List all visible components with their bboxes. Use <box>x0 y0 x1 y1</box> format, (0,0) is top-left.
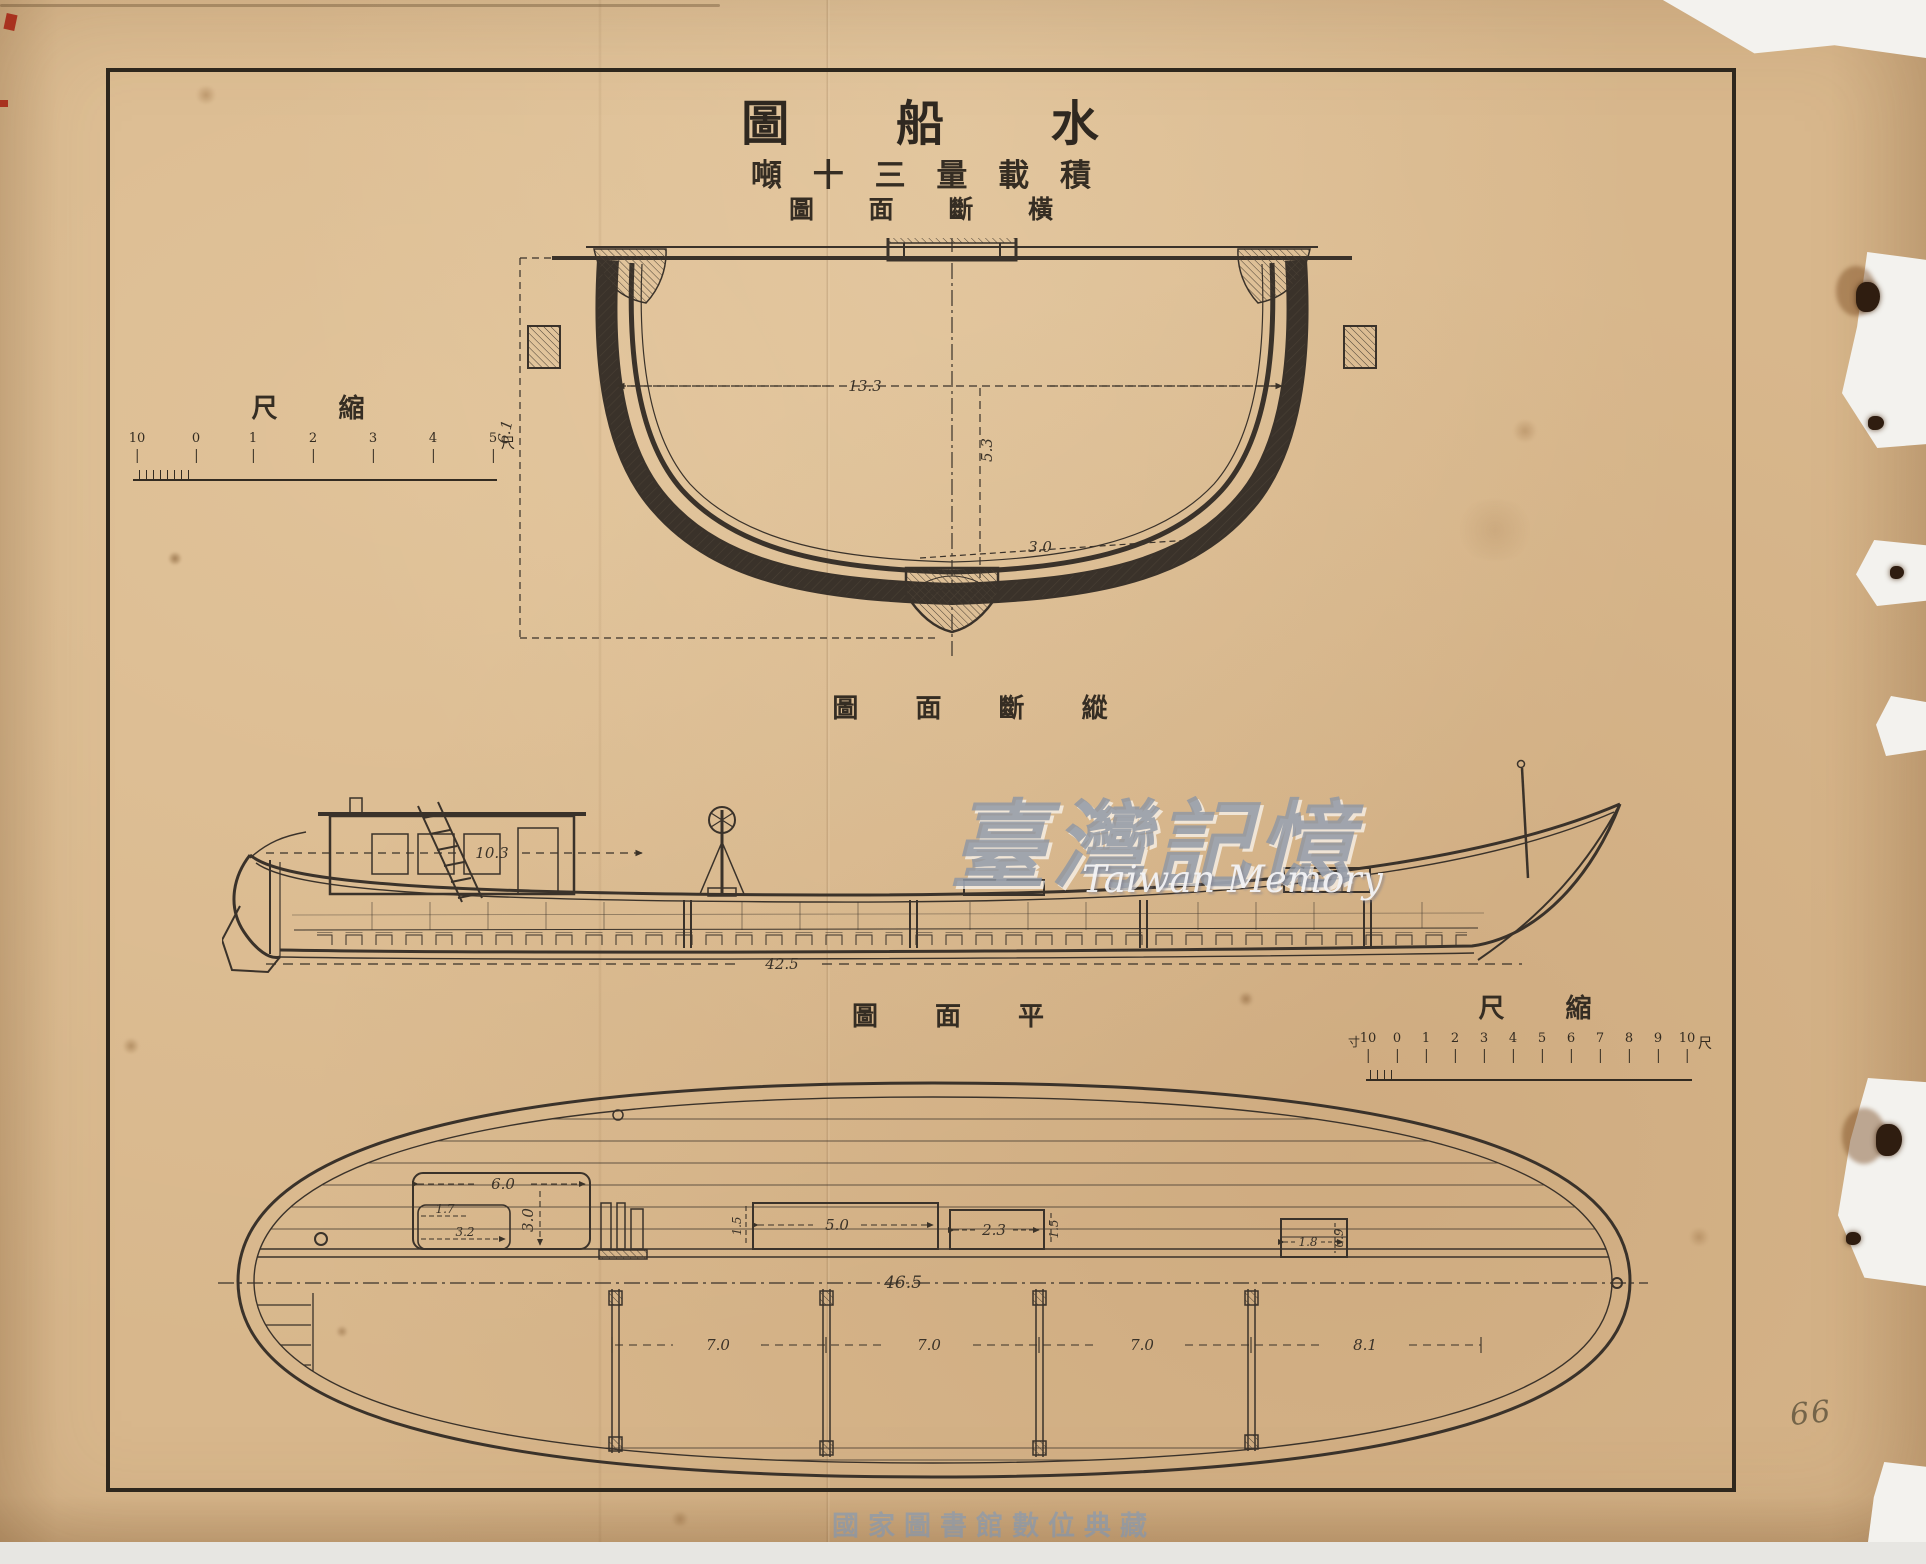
ruler-unit-sun: 寸 <box>1348 1033 1360 1050</box>
dim-plan-hatch-depth: 3.0 <box>519 1208 537 1232</box>
red-mark <box>0 100 8 107</box>
ruler-tick: 8 <box>1625 1031 1633 1046</box>
dim-side-length: 42.5 <box>764 955 798 973</box>
dim-cross-depth: 5.3 <box>978 438 996 462</box>
handwritten-page-number: 66 <box>1788 1394 1834 1433</box>
side-interior <box>292 900 1484 948</box>
stain <box>670 1512 690 1526</box>
ruler-tick: 4 <box>1509 1031 1517 1046</box>
ruler-tick: 4 <box>429 431 437 446</box>
stain <box>1450 500 1540 560</box>
dim-plan-aft-width: 2.3 <box>981 1221 1006 1239</box>
scanner-background-strip <box>0 1542 1926 1564</box>
plan-deck-edge <box>233 1249 1633 1257</box>
page-subtitle-capacity: 噸 十 三 量 載 積 <box>106 150 1736 195</box>
longitudinal-section-drawing: 10.3 42.5 <box>222 710 1657 1010</box>
dim-plan-mid-width: 5.0 <box>825 1216 849 1234</box>
cross-keel <box>906 568 998 632</box>
stain <box>195 86 217 104</box>
cross-section-drawing: 13.3 5.3 3.0 6.1 <box>490 238 1410 658</box>
dim-cross-height: 6.1 <box>494 418 517 445</box>
plan-bulkheads <box>609 1289 1258 1457</box>
dim-plan-bay2: 7.0 <box>917 1336 941 1354</box>
stain <box>336 1326 348 1337</box>
side-hull-profile <box>222 804 1620 972</box>
library-watermark: 國家圖書館數位典藏 <box>832 1504 1156 1543</box>
stain <box>1512 420 1538 442</box>
ruler-tick: 0 <box>192 431 200 446</box>
ruler-tick: 10 <box>129 431 146 446</box>
dim-plan-bay3: 7.0 <box>1130 1336 1154 1354</box>
ruler-tick: 1 <box>1422 1031 1430 1046</box>
dim-cross-bottom: 3.0 <box>1028 538 1052 556</box>
dim-plan-overall: 46.5 <box>883 1273 922 1293</box>
stain <box>1688 1228 1710 1246</box>
dim-side-hold: 10.3 <box>475 844 508 862</box>
dim-plan-aft-depth: 1.5 <box>1047 1219 1061 1238</box>
plan-hull-outline <box>238 1083 1630 1477</box>
ruler-tick: 2 <box>1451 1031 1459 1046</box>
ruler-tick: 3 <box>1480 1031 1488 1046</box>
ruler-tick: 6 <box>1567 1031 1575 1046</box>
side-winch <box>700 807 744 896</box>
ruler-unit-shaku: 尺 <box>1698 1033 1712 1053</box>
plan-stern-steps <box>239 1293 313 1453</box>
dim-plan-bay1: 7.0 <box>706 1336 730 1354</box>
page-title: 圖 船 水 <box>106 84 1736 154</box>
ruler-tick: 9 <box>1654 1031 1662 1046</box>
plan-deck-structures <box>315 1110 1622 1288</box>
plan-deck-planks <box>233 1119 1633 1460</box>
ruler-minor-ticks <box>139 470 195 479</box>
scanned-blueprint-page: 圖 船 水 噸 十 三 量 載 積 圖 面 斷 橫 圖 面 斷 縱 圖 面 平 … <box>0 0 1926 1564</box>
scale-ruler-left: 尺 縮 10 0 1 2 3 4 5 尺 <box>103 388 513 485</box>
ruler-tick: 7 <box>1596 1031 1604 1046</box>
scan-edge-shadow <box>0 4 720 7</box>
ruler-tick: 1 <box>249 431 257 446</box>
stain <box>122 1038 140 1054</box>
dim-plan-locker-width: 1.7 <box>435 1202 454 1216</box>
ruler-tick: 10 <box>1679 1031 1696 1046</box>
stain <box>168 552 182 565</box>
dim-plan-stern-width: 1.8 <box>1298 1235 1317 1249</box>
dim-plan-locker-length: 3.2 <box>455 1225 474 1239</box>
dim-cross-beam: 13.3 <box>848 377 881 395</box>
dim-plan-stern-depth: 0.9 <box>1332 1228 1346 1247</box>
plan-view-drawing: 6.0 3.0 1.7 3.2 1.5 5.0 2.3 1.5 1.8 0.9 … <box>213 1053 1653 1493</box>
scale-ruler-left-bar: 10 0 1 2 3 4 5 尺 <box>103 431 513 485</box>
stain <box>1238 992 1254 1006</box>
ruler-tick: 3 <box>369 431 377 446</box>
dim-plan-mid-depth: 1.5 <box>730 1216 744 1235</box>
taiwan-memory-watermark-en: Taiwan Memory <box>1082 858 1383 901</box>
plan-windlass <box>599 1203 647 1259</box>
ruler-tick: 0 <box>1393 1031 1401 1046</box>
ruler-tick: 10 <box>1360 1031 1377 1046</box>
dim-plan-hatch-width: 6.0 <box>491 1175 515 1193</box>
ruler-tick: 5 <box>1538 1031 1546 1046</box>
dim-plan-bay4: 8.1 <box>1353 1336 1377 1354</box>
ruler-baseline <box>133 479 497 481</box>
scale-ruler-left-label: 尺 縮 <box>103 388 513 425</box>
ruler-tick: 2 <box>309 431 317 446</box>
cross-section-label: 圖 面 斷 橫 <box>106 190 1736 226</box>
